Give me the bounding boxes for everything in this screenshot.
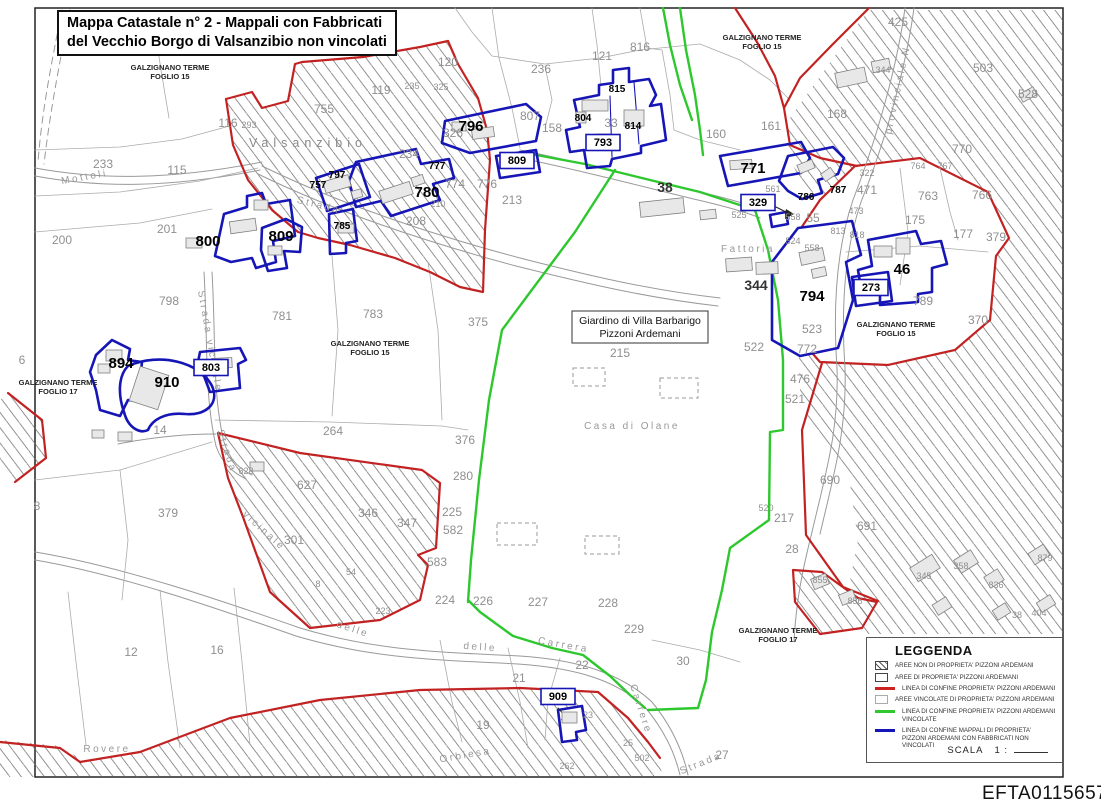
scale-row: SCALA 1 : — [947, 745, 1048, 756]
parcel-number: 116 — [218, 116, 237, 130]
parcel-number: 347 — [397, 516, 417, 530]
parcel-number: 223 — [375, 606, 390, 616]
municipality-label: FOGLIO 17 — [758, 635, 797, 644]
legend-entry-label: AREE VINCOLATE DI PROPRIETA' PIZZONI ARD… — [895, 695, 1054, 704]
legend-box: LEGGENDA AREE NON DI PROPRIETA' PIZZONI … — [866, 637, 1063, 763]
hatched-area — [0, 393, 46, 482]
parcel-number: 21 — [512, 671, 526, 685]
parcel-number: 23 — [583, 710, 593, 720]
parcel-number: 471 — [857, 183, 877, 197]
parcel-number: 522 — [744, 340, 764, 354]
parcel-number: 14 — [153, 423, 167, 437]
parcel-number: 628 — [238, 466, 253, 476]
mappale-number: 771 — [740, 160, 765, 177]
parcel-line — [332, 256, 338, 416]
parcel-number: 763 — [918, 189, 938, 203]
green-line-icon — [875, 710, 895, 713]
parcel-number: 379 — [158, 506, 178, 520]
parcel-number: 217 — [774, 511, 794, 525]
scale-value: 1 : — [994, 745, 1008, 756]
parcel-number: 524 — [785, 236, 800, 246]
municipality-label: FOGLIO 15 — [350, 348, 389, 357]
parcel-number: 627 — [297, 478, 317, 492]
parcel-number: 525 — [731, 210, 746, 220]
mappale-number: 803 — [202, 362, 220, 374]
building-footprint — [118, 432, 132, 441]
parcel-number: 425 — [888, 15, 908, 29]
white-box-icon — [875, 673, 888, 682]
municipality-label: GALZIGNANO TERME — [331, 339, 410, 348]
parcel-number: 503 — [973, 61, 993, 75]
street-label: Valsanzibio — [249, 136, 367, 150]
parcel-line — [640, 8, 674, 130]
parcel-number: 521 — [785, 392, 805, 406]
mappale-number: 786 — [798, 192, 815, 203]
parcel-number: 8 — [34, 499, 41, 513]
mappale-number: 797 — [329, 170, 346, 181]
parcel-number: 27 — [715, 748, 729, 762]
parcel-number: 358 — [953, 561, 968, 571]
mappale-number: 910 — [154, 374, 179, 391]
parcel-number: 836 — [988, 580, 1003, 590]
parcel-line — [652, 640, 740, 662]
parcel-line — [492, 8, 520, 148]
parcel-number: 161 — [761, 119, 781, 133]
mappale-number: 909 — [549, 691, 567, 703]
parcel-number: 235 — [404, 81, 419, 91]
parcel-number: 774 — [445, 177, 465, 191]
parcel-number: 404 — [1031, 608, 1046, 618]
hatch-box-icon — [875, 661, 888, 670]
parcel-number: 226 — [473, 594, 493, 608]
dashed-structure — [573, 368, 605, 386]
parcel-line — [428, 262, 442, 420]
mappale-number: 894 — [108, 355, 134, 372]
parcel-number: 776 — [477, 177, 497, 191]
document-code: EFTA01156575 — [982, 783, 1101, 805]
building-footprint — [756, 262, 778, 275]
parcel-number: 813 — [830, 226, 845, 236]
building-footprint — [582, 100, 608, 111]
building-footprint — [726, 257, 753, 272]
legend-entry-label: LINEA DI CONFINE PROPRIETA' PIZZONI ARDE… — [902, 684, 1055, 693]
building-footprint — [562, 712, 577, 723]
legend-title: LEGGENDA — [895, 643, 1056, 658]
parcel-number: 208 — [406, 214, 426, 228]
legend-entry-label: LINEA DI CONFINE PROPRIETA' PIZZONI ARDE… — [902, 707, 1056, 724]
street-label: Carrera — [537, 636, 590, 656]
cadastral-map-page: ValsanzibioMottoliStradaStrada vicinaleS… — [0, 0, 1101, 811]
parcel-number: 12 — [124, 645, 138, 659]
parcel-number: 807 — [520, 109, 540, 123]
building-footprint — [229, 218, 256, 234]
parcel-number: 158 — [542, 121, 562, 135]
mappale-number: 809 — [268, 228, 293, 245]
parcel-number: 783 — [363, 307, 383, 321]
mappale-number: 273 — [862, 282, 880, 294]
mappale-number: 809 — [508, 155, 526, 167]
scale-blank — [1014, 752, 1048, 753]
scale-label: SCALA — [947, 745, 983, 756]
parcel-number: 855 — [812, 575, 827, 585]
parcel-number: 28 — [785, 542, 799, 556]
mappale-number: 757 — [310, 180, 327, 191]
parcel-number: 262 — [559, 761, 574, 771]
parcel-number: 16 — [210, 643, 224, 657]
parcel-number: 346 — [358, 506, 378, 520]
municipality-label: FOGLIO 15 — [742, 42, 781, 51]
garden-note-box: Giardino di Villa BarbarigoPizzoni Ardem… — [572, 311, 708, 343]
parcel-number: 33 — [604, 116, 618, 130]
mappale-number: 777 — [429, 161, 446, 172]
parcel-number: 119 — [371, 83, 390, 97]
garden-note-text: Pizzoni Ardemani — [599, 328, 680, 340]
mappale-number: 814 — [625, 121, 642, 132]
parcel-number: 856 — [847, 596, 862, 606]
parcel-line — [120, 470, 128, 600]
parcel-number: 764 — [910, 161, 925, 171]
parcel-number: 520 — [758, 503, 773, 513]
parcel-line — [118, 434, 216, 444]
legend-entry: AREE VINCOLATE DI PROPRIETA' PIZZONI ARD… — [875, 695, 1056, 704]
parcel-number: 115 — [167, 163, 186, 177]
parcel-number: 690 — [820, 473, 840, 487]
parcel-line — [35, 442, 212, 480]
parcel-line — [592, 8, 601, 86]
parcel-number: 781 — [272, 309, 292, 323]
parcel-number: 175 — [905, 213, 925, 227]
parcel-number: 213 — [502, 193, 522, 207]
mappale-number: 815 — [609, 84, 626, 95]
parcel-number: 379 — [986, 230, 1006, 244]
green-boundary-line — [680, 8, 703, 155]
parcel-number: 121 — [592, 49, 612, 63]
building-footprint — [92, 430, 104, 438]
parcel-number: 215 — [610, 346, 630, 360]
parcel-number: 19 — [476, 718, 490, 732]
parcel-number: 528 — [1018, 87, 1038, 101]
parcel-number: 502 — [634, 753, 649, 763]
parcel-number: 228 — [598, 596, 618, 610]
parcel-number: 798 — [159, 294, 179, 308]
parcel-number: 25 — [623, 738, 633, 748]
vincolate-box-icon — [875, 695, 888, 704]
parcel-number: 280 — [453, 469, 473, 483]
dashed-structures-layer — [497, 368, 698, 554]
parcel-number: 233 — [93, 157, 113, 171]
mappale-number: 800 — [195, 233, 220, 250]
parcel-number: 200 — [52, 233, 72, 247]
parcel-number: 264 — [323, 424, 343, 438]
parcel-number: 293 — [241, 120, 256, 130]
legend-entry: LINEA DI CONFINE PROPRIETA' PIZZONI ARDE… — [875, 684, 1056, 693]
parcel-number: 344 — [875, 65, 890, 75]
parcel-line — [160, 590, 180, 748]
parcel-number: 345 — [916, 571, 931, 581]
building-footprint — [639, 198, 684, 218]
street-label: Fattoria — [721, 244, 775, 255]
blue-line-icon — [875, 729, 895, 732]
street-label: Strada vicinale — [195, 290, 224, 393]
municipality-label: GALZIGNANO TERME — [723, 33, 802, 42]
dashed-structure — [585, 536, 619, 554]
parcel-number: 523 — [802, 322, 822, 336]
parcel-number: 322 — [859, 168, 874, 178]
parcel-number: 201 — [157, 222, 177, 236]
parcel-number: 375 — [468, 315, 488, 329]
mappale-number: 785 — [334, 221, 351, 232]
parcel-number: 177 — [953, 227, 973, 241]
mappale-number: 329 — [749, 197, 767, 209]
dashed-structure — [660, 378, 698, 398]
legend-entry-label: AREE DI PROPRIETA' PIZZONI ARDEMANI — [895, 673, 1018, 682]
parcel-number: 789 — [913, 294, 933, 308]
street-label: Casa di Olane — [584, 421, 680, 432]
legend-entry: AREE NON DI PROPRIETA' PIZZONI ARDEMANI — [875, 661, 1056, 670]
parcel-line — [700, 44, 790, 100]
parcel-number: 30 — [676, 654, 690, 668]
parcel-number: 770 — [952, 142, 972, 156]
parcel-number: 772 — [797, 342, 817, 356]
parcel-number: 818 — [849, 230, 864, 240]
parcel-number: 879 — [1037, 553, 1052, 563]
building-footprint — [268, 246, 282, 255]
map-title-line1: Mappa Catastale n° 2 - Mappali con Fabbr… — [67, 14, 387, 33]
parcel-number: 301 — [284, 533, 304, 547]
parcel-number: 473 — [848, 206, 863, 216]
municipality-label: GALZIGNANO TERME — [739, 626, 818, 635]
parcel-number: 325 — [433, 82, 448, 92]
building-footprint — [700, 209, 717, 220]
mappale-number: 804 — [575, 113, 592, 124]
parcel-number: 766 — [972, 188, 992, 202]
parcel-number: 229 — [624, 622, 644, 636]
parcel-number: 767 — [937, 161, 952, 171]
parcel-number: 160 — [706, 127, 726, 141]
legend-entry: LINEA DI CONFINE PROPRIETA' PIZZONI ARDE… — [875, 707, 1056, 724]
municipality-label: FOGLIO 17 — [38, 387, 77, 396]
mappale-number: 787 — [830, 185, 847, 196]
municipality-label: FOGLIO 15 — [150, 72, 189, 81]
parcel-number: 168 — [827, 107, 847, 121]
legend-entries: AREE NON DI PROPRIETA' PIZZONI ARDEMANIA… — [875, 661, 1056, 750]
municipality-label: GALZIGNANO TERME — [19, 378, 98, 387]
parcel-number: 225 — [442, 505, 462, 519]
legend-entry: AREE DI PROPRIETA' PIZZONI ARDEMANI — [875, 673, 1056, 682]
parcel-number: 755 — [314, 102, 334, 116]
parcel-number: 224 — [435, 593, 455, 607]
green-boundary-line — [520, 152, 755, 210]
building-footprint — [254, 200, 268, 210]
municipality-label: GALZIGNANO TERME — [131, 63, 210, 72]
municipality-label: GALZIGNANO TERME — [857, 320, 936, 329]
mappale-number: 46 — [894, 261, 911, 278]
map-title-line2: del Vecchio Borgo di Valsanzibio non vin… — [67, 33, 387, 52]
parcel-number: 558 — [804, 243, 819, 253]
mappale-number: 793 — [594, 137, 612, 149]
parcel-number: 38 — [1012, 610, 1022, 620]
red-boundary-line — [735, 8, 784, 108]
parcel-number: 38 — [657, 179, 673, 195]
map-title-box: Mappa Catastale n° 2 - Mappali con Fabbr… — [57, 10, 397, 56]
parcel-number: 370 — [968, 313, 988, 327]
green-boundary-line — [468, 170, 615, 602]
mappale-number: 780 — [414, 184, 439, 201]
building-footprint — [896, 238, 910, 254]
municipality-label: FOGLIO 15 — [876, 329, 915, 338]
street-label: delle — [463, 641, 497, 654]
dashed-structure — [497, 523, 537, 545]
parcel-number: 54 — [346, 567, 356, 577]
parcel-number: 583 — [427, 555, 447, 569]
mappale-number: 794 — [799, 288, 825, 305]
street-label: Rovere — [83, 744, 130, 755]
legend-entry-label: AREE NON DI PROPRIETA' PIZZONI ARDEMANI — [895, 661, 1034, 670]
red-line-icon — [875, 687, 895, 690]
parcel-number: 561 — [765, 184, 780, 194]
parcel-number: 234 — [399, 147, 419, 161]
parcel-line — [35, 127, 226, 150]
parcel-line — [68, 592, 86, 745]
parcel-number: 476 — [790, 372, 810, 386]
parcel-line — [35, 209, 212, 232]
parcel-number: 22 — [575, 658, 589, 672]
garden-note-text: Giardino di Villa Barbarigo — [579, 315, 701, 327]
parcel-number: 6 — [19, 353, 26, 367]
parcel-number: 8 — [315, 579, 320, 589]
parcel-number: 691 — [857, 519, 877, 533]
parcel-number: 558 — [785, 212, 800, 222]
parcel-number: 55 — [806, 211, 820, 225]
parcel-number: 582 — [443, 523, 463, 537]
parcel-number: 376 — [455, 433, 475, 447]
building-footprint — [874, 246, 892, 257]
parcel-number: 816 — [630, 40, 650, 54]
parcel-number: 120 — [438, 55, 458, 69]
parcel-number: 227 — [528, 595, 548, 609]
parcel-number: 344 — [744, 277, 768, 293]
parcel-number: 236 — [531, 62, 551, 76]
mappale-number: 796 — [458, 118, 483, 135]
